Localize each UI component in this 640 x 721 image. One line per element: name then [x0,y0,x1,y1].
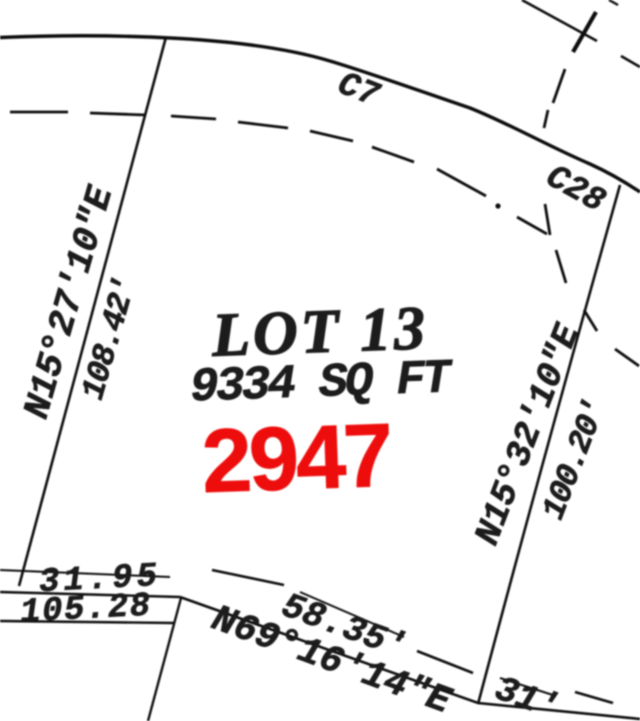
svg-text:C7: C7 [332,66,384,116]
svg-text:31': 31' [490,669,565,721]
svg-text:9334 SQ FT: 9334 SQ FT [189,352,455,415]
svg-text:2947: 2947 [200,406,392,513]
svg-text:105.28: 105.28 [19,588,152,633]
